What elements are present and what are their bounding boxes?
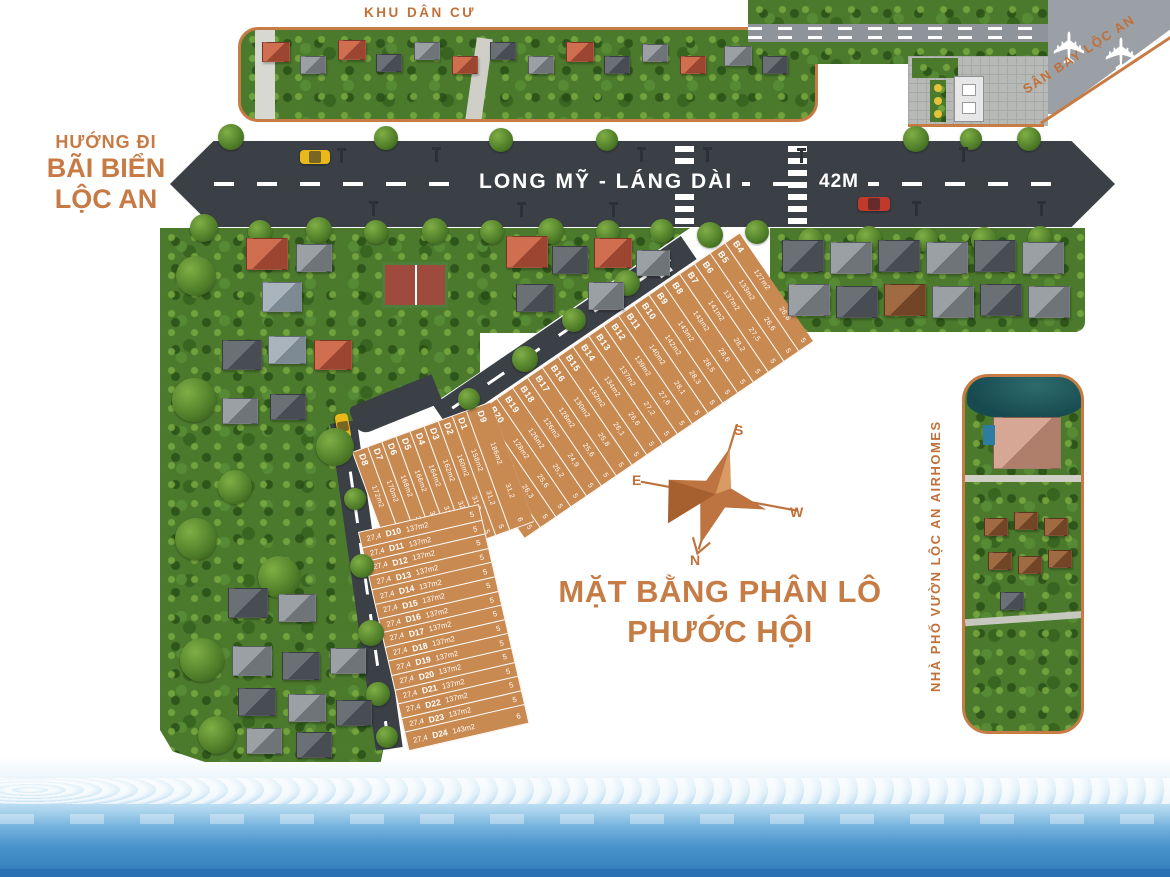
road-width-label: 42M: [810, 171, 868, 193]
compass-north: N: [690, 552, 700, 568]
marker-dot-icon: [934, 84, 942, 92]
site-plan-poster: LONG MỸ - LÁNG DÀI 42M B22133m226,65B211…: [0, 0, 1170, 877]
marker-dot-icon: [934, 97, 942, 105]
airhomes-photo: [962, 374, 1084, 734]
marker-dot-icon: [934, 110, 942, 118]
compass-star-icon: [618, 424, 818, 574]
title-line1: MẶT BẰNG PHÂN LÔ: [510, 572, 930, 612]
crosswalk-icon: [649, 253, 673, 279]
residential-area-label: KHU DÂN CƯ: [330, 5, 510, 20]
inset-road: [465, 37, 493, 122]
compass-west: W: [790, 504, 803, 520]
title-line2: PHƯỚC HỘI: [510, 612, 930, 652]
compass-east: E: [632, 472, 641, 488]
ocean: [0, 756, 1170, 877]
airport-runway: [748, 24, 1054, 42]
tennis-court: [382, 262, 448, 308]
main-road-name: LONG MỸ - LÁNG DÀI: [470, 170, 742, 194]
direction-line2: BÃI BIỂN: [22, 153, 190, 184]
crosswalk-icon: [788, 144, 807, 224]
residential-area-photo: [238, 27, 818, 122]
land-right-band: [770, 228, 1085, 332]
compass-rose: S E W N: [618, 424, 818, 574]
direction-label: HƯỚNG ĐI BÃI BIỂN LỘC AN: [22, 132, 190, 215]
page-title: MẶT BẰNG PHÂN LÔ PHƯỚC HỘI: [510, 572, 930, 653]
path: [965, 611, 1084, 626]
airport-building: [954, 76, 984, 122]
direction-line3: LỘC AN: [22, 184, 190, 215]
compass-south: S: [734, 422, 743, 438]
direction-line1: HƯỚNG ĐI: [22, 132, 190, 153]
villa-icon: [993, 417, 1061, 469]
car-icon: [300, 150, 330, 164]
airport-border: [908, 124, 1044, 127]
pool: [983, 425, 995, 445]
airhomes-label: NHÀ PHỐ VƯỜN LỘC AN AIRHOMES: [928, 400, 946, 712]
ocean-deep-water: [0, 869, 1170, 877]
airport-grass: [748, 0, 1054, 24]
pond: [967, 377, 1083, 419]
path: [965, 475, 1084, 482]
inset-road: [255, 30, 275, 122]
airport-garden: [912, 58, 958, 78]
car-icon: [858, 197, 890, 211]
